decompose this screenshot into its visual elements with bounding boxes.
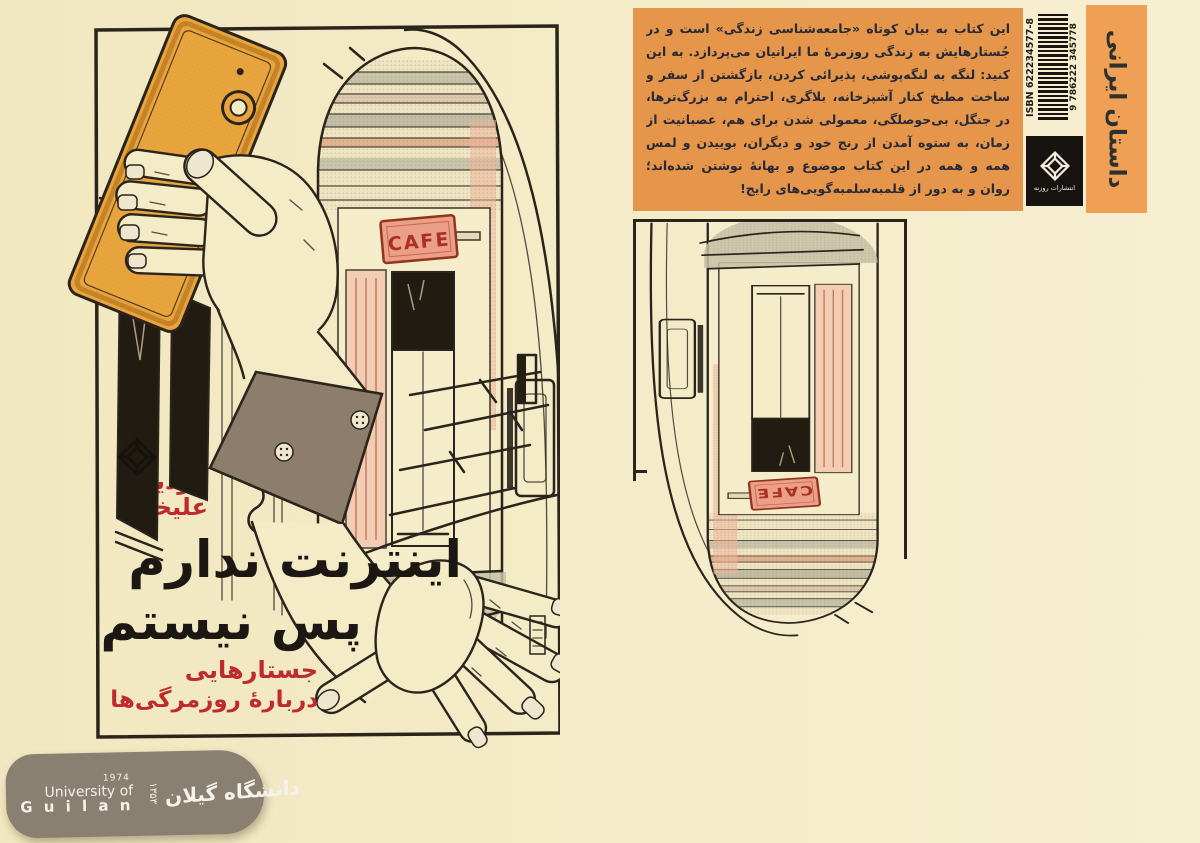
rowzaneh-logo-icon — [116, 434, 158, 480]
guilan-emblem-icon — [140, 766, 141, 822]
book-cover-scan: CAFE — [0, 0, 1200, 843]
badge-year-persian: ۱۳۵۳ — [147, 783, 158, 805]
back-frame-left — [633, 219, 636, 481]
badge-university-persian: دانشگاه گیلان — [165, 775, 300, 809]
rowzaneh-logo-icon — [1039, 150, 1071, 182]
publisher-logo-square: انتشارات روزنه — [1026, 136, 1083, 206]
blurb-line: جُستارهایش به زندگی روزمرهٔ ما ایرانیان … — [646, 41, 1010, 64]
back-cover-illustration — [645, 222, 885, 642]
publisher-name: انتشارات روزنه — [1034, 184, 1075, 192]
subtitle-line-1: جستارهایی — [120, 656, 318, 684]
barcode-number: 9 786222 345778 — [1066, 8, 1082, 126]
blurb-line: همه و همه در این کتاب موضوع و بهانهٔ نوش… — [646, 155, 1010, 178]
badge-university-line-2: G u i l a n — [20, 798, 133, 816]
genre-spine-strip: داستان ایرانی — [1086, 5, 1147, 213]
back-frame-right — [904, 219, 907, 559]
genre-label: داستان ایرانی — [1104, 30, 1130, 189]
subtitle-line-2: دربارۀ روزمرگی‌ها — [100, 687, 318, 713]
cuff-button — [351, 411, 369, 429]
blurb-line: روان و به دور از قلمبه‌سلمبه‌گویی‌های را… — [646, 178, 1010, 201]
back-cover-blurb: این کتاب به بیان کوتاه «جامعه‌شناسی زندگ… — [633, 8, 1023, 211]
isbn-label: ISBN 622234577-8 — [1022, 8, 1038, 126]
blurb-line: در جنگل، بی‌حوصلگی، معمولی شدن برای هم، … — [646, 109, 1010, 132]
blurb-line: کنید: لنگه به لنگه‌پوشی، پذیرائی کردن، ب… — [646, 64, 1010, 87]
blurb-line: زمان، به ستوه آمدن از رنج خود و دیگران، … — [646, 132, 1010, 155]
university-of-guilan-badge: 1974 University of G u i l a n ۱۳۵۳ دانش… — [5, 749, 265, 838]
book-title-line-2: پس نیستم — [90, 592, 362, 654]
blurb-line: این کتاب به بیان کوتاه «جامعه‌شناسی زندگ… — [646, 18, 1010, 41]
book-title-line-1: اینترنت ندارم — [90, 530, 462, 592]
isbn-barcode — [1038, 14, 1068, 120]
blurb-line: ساخت مطبخ کنار آشپزخانه، بلاگری، احترام … — [646, 86, 1010, 109]
cuff-button — [275, 443, 293, 461]
